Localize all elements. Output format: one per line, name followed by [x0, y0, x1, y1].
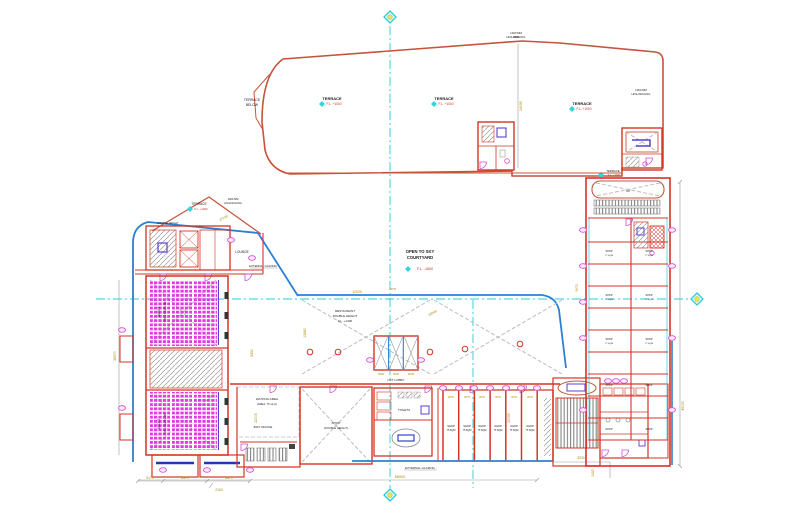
dim-8230: 8230 [577, 456, 584, 460]
dim-3075-s2: 3075 [464, 395, 470, 399]
dim-8370-a: 8370 [181, 476, 189, 480]
shop-2-area: 75 SQM [463, 429, 472, 432]
label-waiting-2: (AREA: 76 sq.m) [257, 402, 277, 406]
terrace-stair-block-b [622, 128, 662, 170]
grid-marker-right [691, 293, 703, 305]
dim-3075-s6: 3075 [527, 395, 533, 399]
shop-5-area: 75 SQM [510, 429, 519, 432]
dim-3075-s3: 3075 [479, 395, 485, 399]
level-marker-icon [431, 101, 437, 107]
label-terrace-3-level: F.L. +1000 [577, 107, 592, 111]
note-railing-top-b: HIGH RAILING [507, 35, 526, 39]
terrace-stair-block-a [478, 122, 514, 170]
dim-3075-s5: 3075 [511, 395, 517, 399]
level-marker-icon [405, 266, 411, 272]
label-restaurant-2: DOUBLE HEIGHT [333, 314, 358, 318]
screen-rooms [152, 455, 244, 477]
unit-1-label: SHOP [605, 250, 612, 253]
toilet-core-right [600, 384, 648, 458]
audi-crossover [146, 348, 228, 390]
label-open-sky-1: OPEN TO SKY [406, 249, 435, 254]
label-open-sky-2: COURTYARD [407, 255, 433, 260]
label-courtyard-level: F.L. -1800 [417, 267, 433, 271]
terrace-outline [262, 41, 663, 176]
dim-3075-top: 3075 [390, 287, 397, 291]
glazing-restaurant [298, 295, 566, 368]
label-terrace-left-level: F.L. +1000 [194, 207, 208, 211]
terrace-area: TERRACE F.L. +1000 TERRACE F.L. +1000 TE… [244, 31, 663, 178]
dim-36570: 36570 [113, 351, 117, 361]
dim-3075-s4: 3075 [495, 395, 501, 399]
dim-5970: 5970 [575, 284, 579, 291]
unit-4-label: SHOP [645, 294, 652, 297]
escalator-1 [594, 200, 660, 206]
label-audi1-seats: TOTAL SEATS 180 [164, 301, 167, 323]
label-restaurant-1: RESTAURANT [335, 309, 355, 313]
label-waiting-1: WAITING AREA [256, 397, 279, 401]
floor-plan-page: TERRACE F.L. +1000 TERRACE F.L. +1000 TE… [0, 0, 800, 515]
label-box-office: BOX OFFICE [254, 425, 273, 429]
escalator-2 [594, 208, 660, 214]
dim-2500-b: 2500 [393, 372, 400, 376]
dim-2500-c: 2500 [408, 372, 415, 376]
waiting-area: WAITING AREA (AREA: 76 sq.m) BOX OFFICE [237, 387, 300, 467]
shop-3-label: SHOP [478, 424, 486, 428]
label-terrace-1-level: F.L. +1000 [327, 102, 342, 106]
label-terrace-below-2: BELOW [246, 103, 259, 107]
label-audi2: AUDI 2 [157, 419, 161, 430]
dim-12025: 12025 [352, 290, 362, 294]
label-lift-lobby: LIFT LOBBY [388, 378, 405, 382]
exit-stair-pod-2 [120, 414, 133, 440]
bottom-right-block [553, 378, 668, 466]
dim-22055: 22055 [507, 413, 511, 423]
label-lounge: LOUNGE [235, 250, 248, 254]
dim-49150: 49150 [681, 401, 685, 411]
grid-marker-bottom [384, 489, 396, 501]
label-double-height: DOUBLE HEIGHT [157, 221, 179, 225]
unit-8-label: SHOP [645, 384, 652, 387]
dim-13680: 13680 [303, 328, 307, 338]
label-shop-dh-2: (DOUBLE HEIGHT) [324, 426, 348, 430]
level-marker-icon [319, 101, 325, 107]
shops-row: 3075 3075 3075 3075 3075 3075 SHOP 75 SQ… [443, 390, 553, 461]
dim-27130: 27130 [218, 214, 228, 222]
unit-3-label: SHOP [605, 294, 612, 297]
label-terrace-3: TERRACE [572, 101, 592, 106]
unit-9-label: SHOP [605, 428, 612, 431]
unit-1-area: 77 SQM [605, 255, 613, 257]
dim-2100: 2100 [215, 488, 223, 492]
shop-5-label: SHOP [510, 424, 518, 428]
label-shop-dh-1: SHOP [332, 421, 341, 425]
label-audi2-seats: TOTAL SEATS 180 [164, 413, 167, 435]
dim-5450: 5450 [250, 349, 254, 357]
unit-10-label: SHOP [645, 428, 652, 431]
label-terrace-small: TERRACE [606, 169, 619, 173]
dim-2500-a: 2500 [378, 372, 385, 376]
label-restaurant-3: F.L. +1400 [338, 319, 352, 323]
courtyard-restaurant: OPEN TO SKY COURTYARD F.L. -1800 RESTAUR… [250, 173, 622, 382]
dim-8370-b: 8370 [225, 476, 233, 480]
label-terrace-2-level: F.L. +1000 [439, 102, 454, 106]
label-toilets: TOILETS [398, 408, 410, 412]
label-terrace-2: TERRACE [434, 96, 454, 101]
note-railing-left-a: 1000 MM [228, 197, 239, 201]
label-terrace-1: TERRACE [322, 96, 342, 101]
shop-6-label: SHOP [526, 424, 534, 428]
dim-3075-s1: 3075 [448, 395, 454, 399]
shop-6-area: 75 SQM [526, 429, 535, 432]
grid-marker-top [384, 11, 396, 23]
unit-labels: SHOP 77 SQM SHOP 77 SQM SHOP 77 SQM SHOP… [605, 250, 653, 431]
unit-4-area: 77 SQM [645, 299, 653, 301]
shop-1-label: SHOP [447, 424, 455, 428]
exit-stair-pod-1 [120, 336, 133, 362]
floor-plan-canvas: TERRACE F.L. +1000 TERRACE F.L. +1000 TE… [0, 0, 800, 515]
dim-15640: 15640 [427, 309, 437, 317]
unit-6-label: SHOP [645, 338, 652, 341]
note-railing-left-b: HIGH RAILING [224, 201, 242, 205]
unit-5-area: 77 SQM [605, 343, 613, 345]
dim-68000: 68000 [395, 475, 406, 479]
label-up: UP [626, 189, 630, 193]
dim-5175: 5175 [146, 476, 154, 480]
unit-3-area: 77 SQM [605, 299, 613, 301]
shop-4-label: SHOP [494, 424, 502, 428]
label-external-glazing-bottom: EXTERNAL GLAZING [405, 466, 435, 470]
toilet-block: TOILETS [374, 388, 432, 456]
unit-2-area: 77 SQM [645, 255, 653, 257]
hatched-end-wall [544, 398, 551, 456]
label-terrace-small-level: F.L. +1000 [608, 173, 621, 177]
shop-1-area: 75 SQM [447, 429, 456, 432]
shop-2-label: SHOP [463, 424, 471, 428]
auditorium-2: AUDI 2 TOTAL SEATS 180 [150, 392, 219, 450]
unit-2-label: SHOP [645, 250, 652, 253]
dim-22005: 22005 [254, 413, 258, 423]
unit-7-label: SHOP [605, 384, 612, 387]
unit-6-area: 77 SQM [645, 343, 653, 345]
shop-double-height: SHOP (DOUBLE HEIGHT) [300, 387, 372, 464]
lift-block: 2500 2500 2500 LIFT LOBBY [374, 336, 418, 382]
unit-5-label: SHOP [605, 338, 612, 341]
note-railing-right-b: HIGH RAILING [632, 92, 651, 96]
shop-3-area: 75 SQM [478, 429, 487, 432]
dim-2400: 2400 [591, 469, 595, 476]
level-marker-icon [569, 106, 575, 112]
label-audi1: AUDI 1 [157, 307, 161, 318]
label-terrace-left: TERRACE [191, 202, 206, 206]
label-terrace-below-1: TERRACE [244, 98, 261, 102]
shop-4-area: 75 SQM [494, 429, 503, 432]
dim-24095: 24095 [519, 101, 523, 111]
